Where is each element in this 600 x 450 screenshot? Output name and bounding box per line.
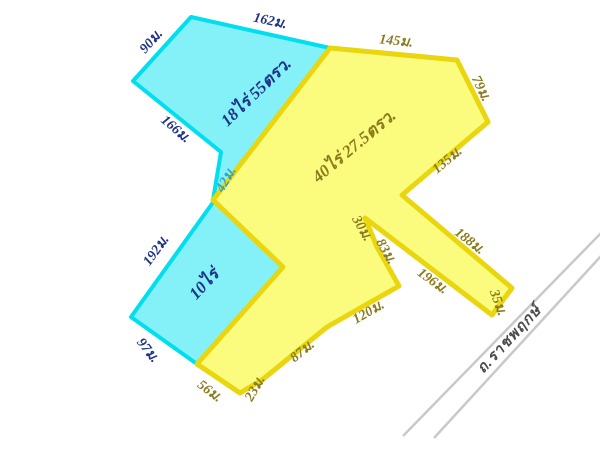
plot-shapes-layer (0, 0, 600, 450)
land-plot-diagram: 90ม. 162ม. 166ม. 42ม. 18ไร่ 55ตรว. 192ม.… (0, 0, 600, 450)
